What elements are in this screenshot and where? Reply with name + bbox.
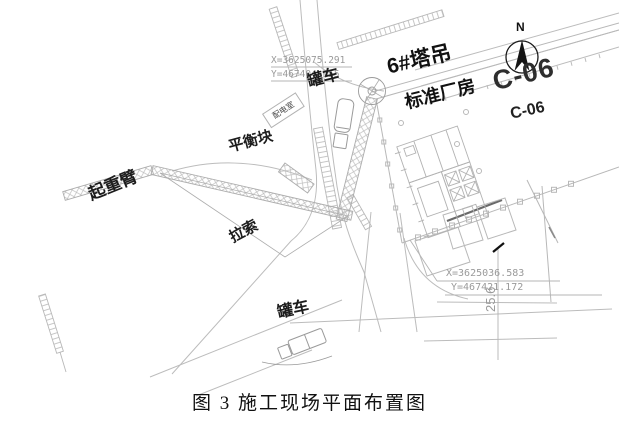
coordinate-label-bottom-x: X=3625036.583 [446,269,524,279]
tower-crane-symbol [63,78,386,258]
figure-caption: 图 3 施工现场平面布置图 [0,393,619,416]
counterweight-block [278,163,314,193]
mixer-truck-top-symbol [331,98,354,149]
dimension-value: 25.6 [484,287,497,312]
floor-plan-detail [393,126,489,239]
north-arrow-label: N [516,21,525,33]
dimension-arrow-tick [493,243,504,252]
guy-cable-lines [160,173,348,257]
coordinate-label-top-x: X=3625075.291 [271,56,345,66]
site-plan-figure: X=3625075.291 Y=467404.955 X=3625036.583… [0,0,619,425]
mixer-truck-bottom-symbol [262,328,332,365]
